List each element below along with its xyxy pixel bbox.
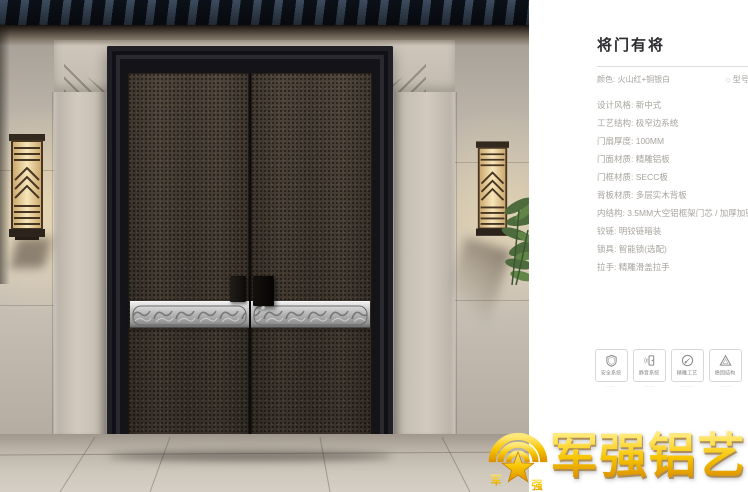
wall-lantern-left [9, 134, 45, 240]
roof-shadow [0, 0, 529, 26]
door-handle-right [253, 276, 274, 306]
shield-icon [605, 354, 618, 367]
feature-safety: 安全系统 ········· [595, 349, 628, 390]
spec-list: 设计风格: 新中式 工艺结构: 极窄边系统 门扇厚度: 100MM 门面材质: … [597, 96, 748, 276]
spec-line: 铰链: 明铰链暗装 [597, 222, 748, 240]
spec-line: 内结构: 3.5MM大空铝框架门芯 / 加厚加密航空铝管 [597, 204, 748, 222]
stone-pilaster-left [54, 40, 106, 438]
title-divider [597, 66, 748, 67]
lock-knob [261, 306, 266, 311]
spec-line: 设计风格: 新中式 [597, 96, 748, 114]
wall-seam [0, 305, 54, 306]
door-handle-left [230, 276, 246, 302]
emblem-char-left: 军 [490, 474, 501, 487]
door-center-seam [249, 73, 251, 453]
feature-badges: 安全系统 ········· 静音系统 ·········· [595, 349, 742, 390]
feature-caption: ·········· [638, 385, 661, 389]
brochure-page: 将门有将 颜色: 火山红+铜银白 ◇型号: JC 设计风格: 新中式 工艺结构:… [0, 0, 748, 492]
brand-emblem-icon: 军 强 [486, 421, 550, 491]
eave-shadow [0, 25, 529, 46]
soundproof-door-icon [643, 354, 656, 367]
feature-label: 精雕工艺 [677, 369, 697, 377]
spec-line: 拉手: 精雕滑盖拉手 [597, 258, 748, 276]
feature-caption: ··········· [676, 385, 699, 389]
wall-seam [52, 92, 53, 434]
door-floor-shadow [108, 451, 392, 461]
engraving-pen-icon [681, 354, 694, 367]
floor-tile-seams [0, 434, 529, 492]
stability-triangle-icon [719, 354, 732, 367]
feature-label: 静音系统 [639, 369, 659, 377]
model-value: ◇型号: JC [725, 74, 748, 85]
spec-line: 背板材质: 多层实木背板 [597, 186, 748, 204]
entrance-photo [0, 0, 529, 492]
feature-soundproof: 静音系统 ·········· [633, 349, 666, 390]
feature-label: 安全系统 [601, 369, 621, 377]
color-model-row: 颜色: 火山红+铜银白 ◇型号: JC [597, 74, 748, 86]
spec-line: 门扇厚度: 100MM [597, 132, 748, 150]
feature-caption: ·········· [714, 385, 737, 389]
spec-line: 门框材质: SECC板 [597, 168, 748, 186]
plant [492, 190, 529, 290]
feature-caption: ········· [600, 385, 623, 389]
door-leaf-right [251, 73, 372, 453]
spec-line: 锁具: 智能锁(选配) [597, 240, 748, 258]
feature-label: 稳固结构 [715, 369, 735, 377]
feature-stability: 稳固结构 ·········· [709, 349, 742, 390]
product-title: 将门有将 [597, 34, 665, 55]
brand-name: 军强铝艺 [550, 424, 748, 492]
spec-panel: 将门有将 颜色: 火山红+铜银白 ◇型号: JC 设计风格: 新中式 工艺结构:… [529, 0, 748, 492]
color-value: 颜色: 火山红+铜银白 [597, 75, 670, 84]
stone-pilaster-right [394, 40, 455, 438]
spec-line: 工艺结构: 极窄边系统 [597, 114, 748, 132]
spec-line: 门面材质: 精雕铝板 [597, 150, 748, 168]
diamond-icon: ◇ [725, 77, 730, 84]
feature-engraving: 精雕工艺 ··········· [671, 349, 704, 390]
door-leaf-left [128, 73, 249, 453]
emblem-char-right: 强 [531, 479, 543, 491]
